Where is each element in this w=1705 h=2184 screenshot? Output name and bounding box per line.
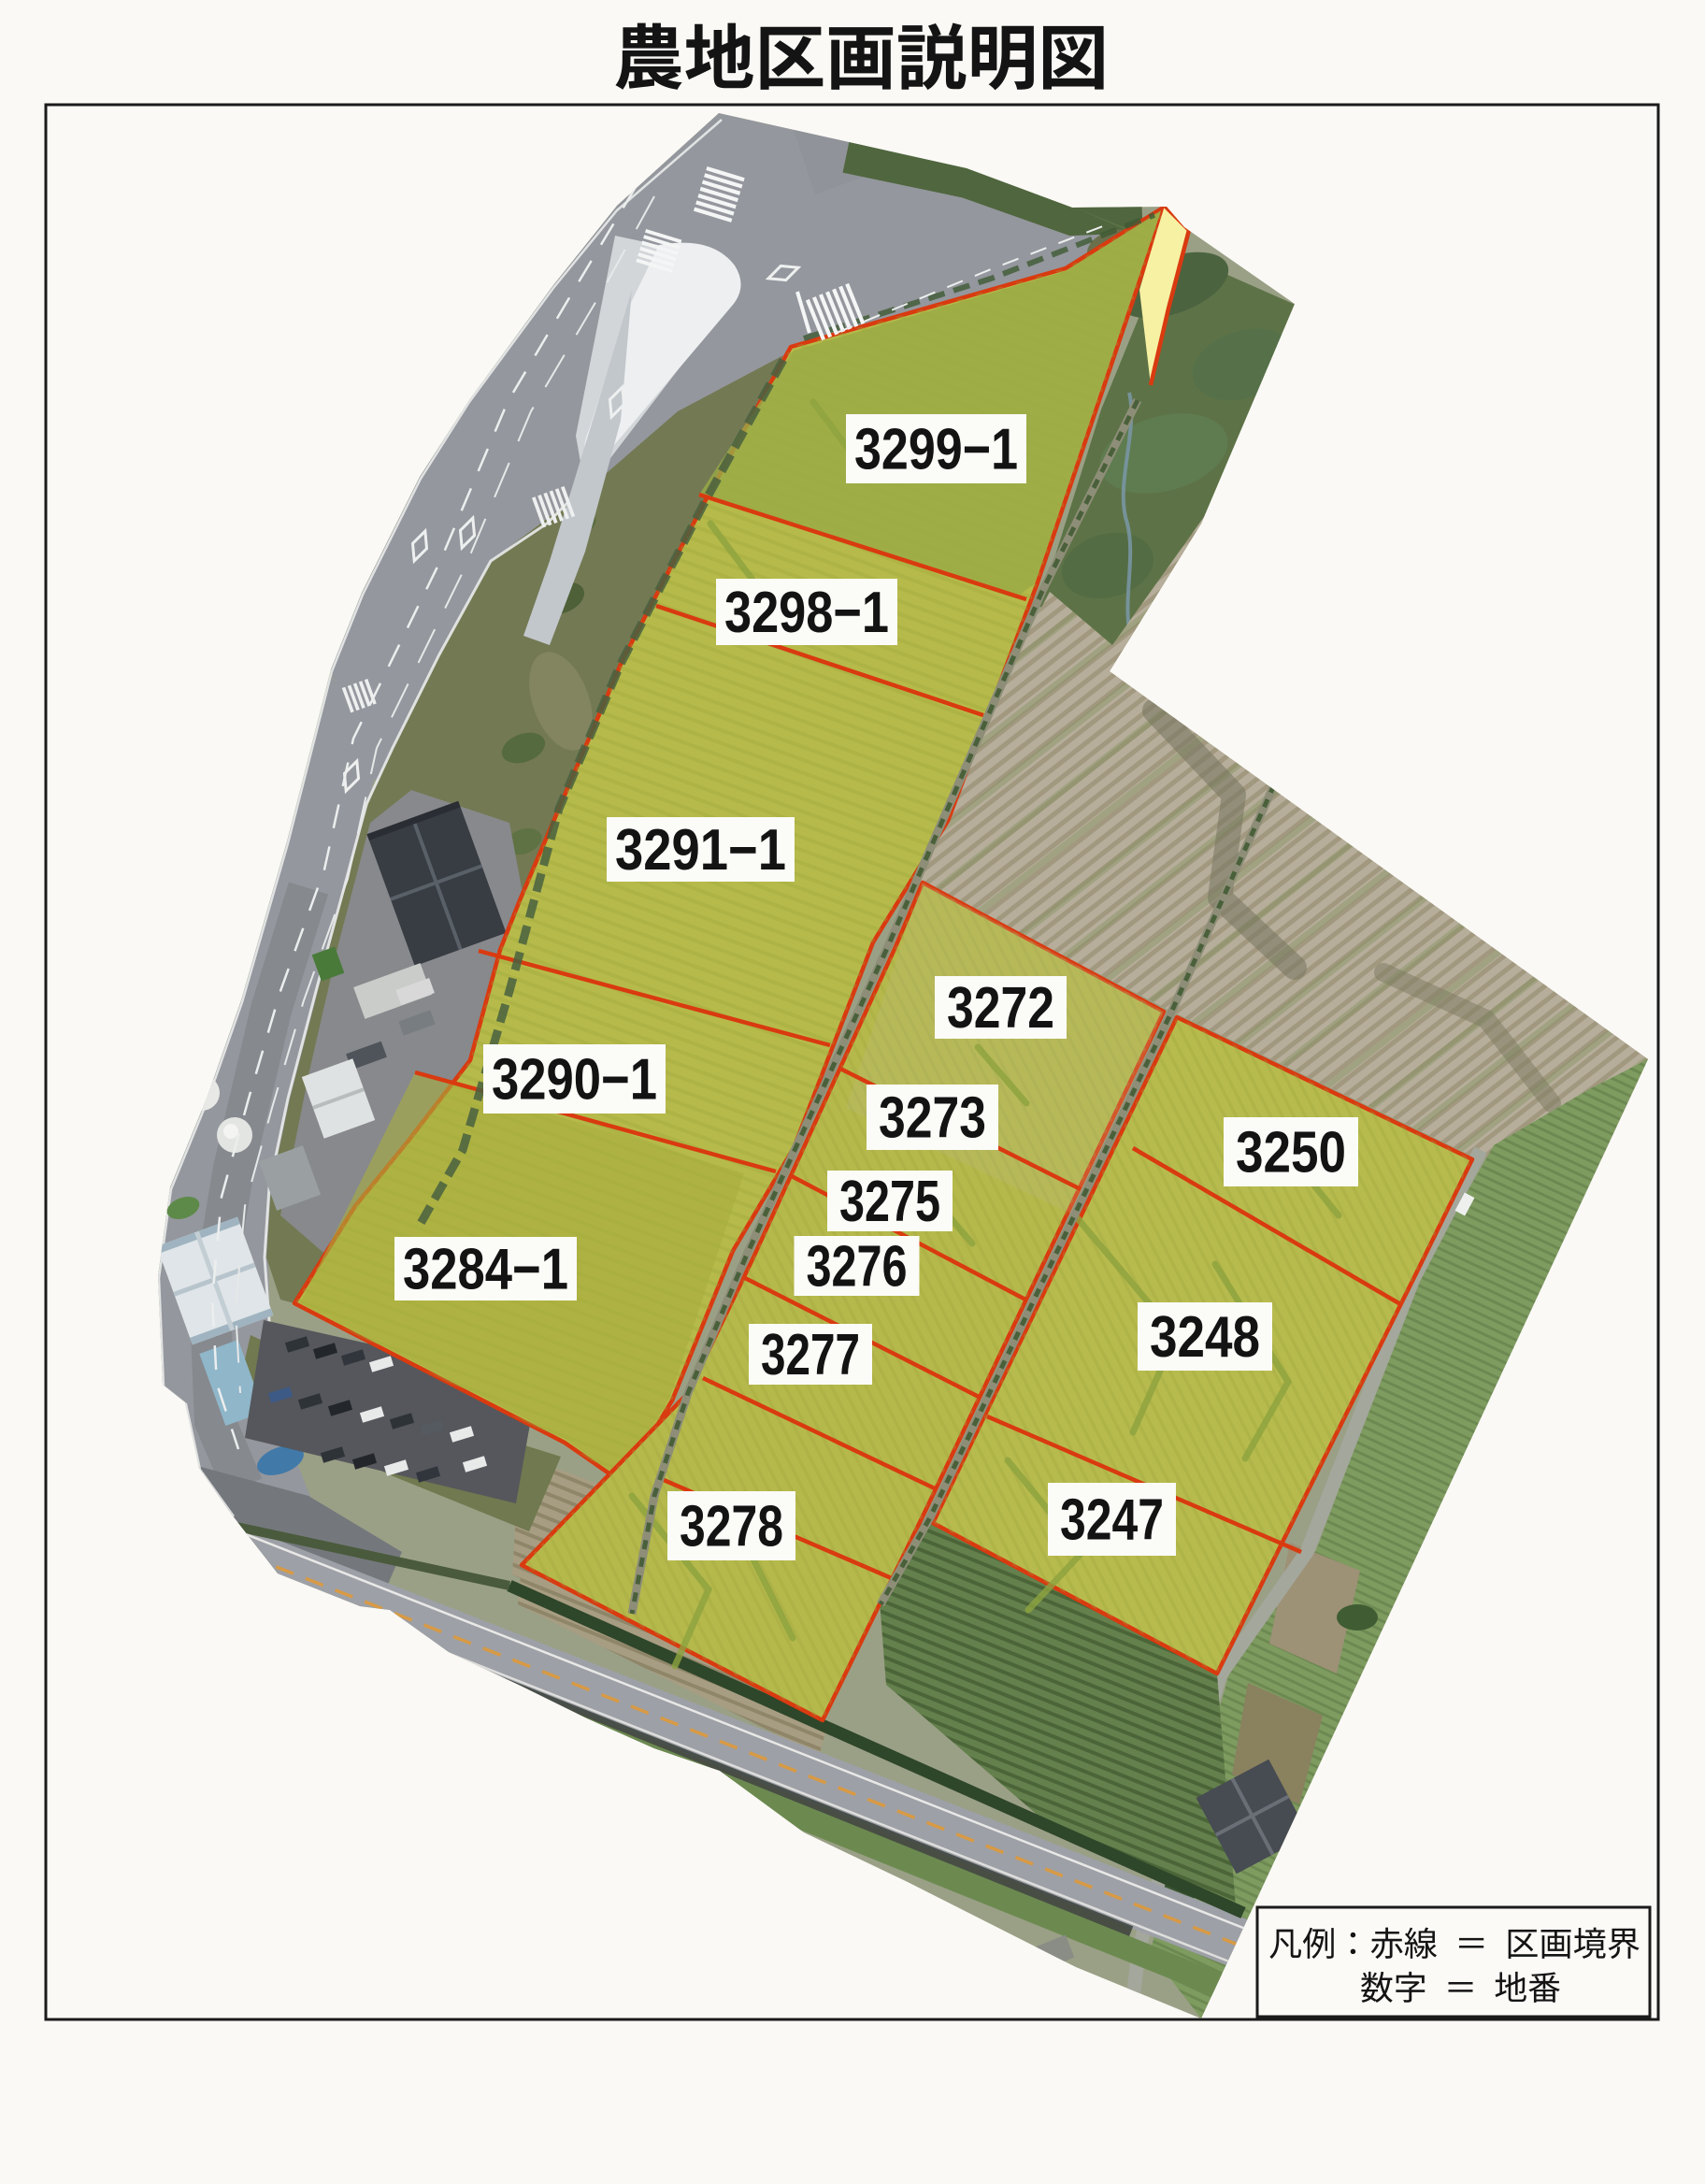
- svg-text:3275: 3275: [839, 1170, 940, 1234]
- svg-text:3298−1: 3298−1: [724, 581, 889, 645]
- svg-text:3290−1: 3290−1: [492, 1048, 657, 1113]
- svg-text:3299−1: 3299−1: [854, 418, 1018, 482]
- svg-text:3276: 3276: [807, 1235, 908, 1300]
- svg-text:3291−1: 3291−1: [615, 818, 786, 883]
- svg-text:3278: 3278: [680, 1495, 783, 1559]
- svg-text:3248: 3248: [1150, 1305, 1260, 1370]
- svg-text:3272: 3272: [947, 976, 1054, 1041]
- svg-text:3277: 3277: [761, 1323, 860, 1387]
- svg-text:3247: 3247: [1060, 1488, 1164, 1553]
- svg-text:3284−1: 3284−1: [403, 1238, 568, 1302]
- svg-text:3273: 3273: [879, 1086, 986, 1151]
- svg-text:3250: 3250: [1236, 1121, 1346, 1185]
